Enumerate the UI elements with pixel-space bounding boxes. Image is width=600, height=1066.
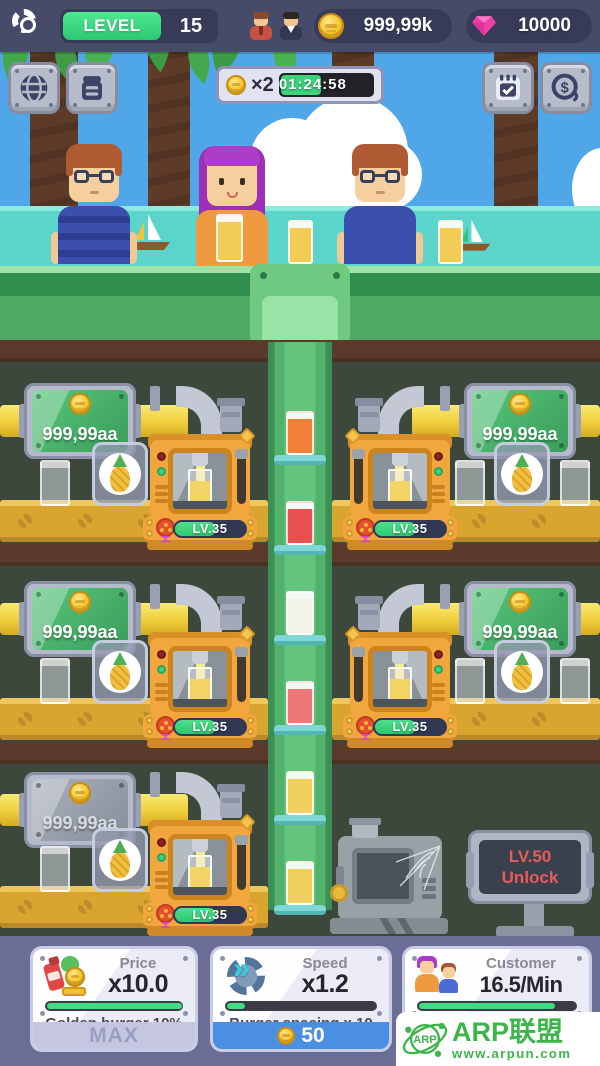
elevator-juice-glass	[286, 681, 314, 725]
gem-icon	[471, 15, 497, 37]
elevator-shelf	[274, 905, 326, 915]
timer-text: 01:24:58	[279, 76, 347, 93]
speed-icon: »	[223, 954, 271, 998]
juice-glass	[288, 220, 313, 264]
arp-logo-icon: ARP	[400, 1014, 450, 1064]
empty-glass	[40, 460, 70, 506]
valve-icon	[220, 788, 242, 818]
level-badge[interactable]: LEVEL 15	[60, 9, 218, 43]
pineapple-icon	[110, 664, 130, 690]
empty-glass	[40, 846, 70, 892]
level-label: LEVEL	[63, 12, 161, 40]
pineapple-container	[92, 828, 148, 892]
elevator-juice-glass	[286, 591, 314, 635]
green-light-icon	[434, 467, 443, 476]
machine-screen	[368, 646, 432, 712]
glasses-icon	[74, 170, 114, 184]
price-upgrade-button[interactable]: MAX	[33, 1022, 195, 1049]
coin-icon	[226, 75, 246, 95]
supply-crate-icon	[77, 73, 107, 103]
valve-icon	[352, 822, 378, 838]
watermark-title: ARP联盟	[452, 1018, 571, 1046]
speed-upgrade-card: » Speed x1.2 Burger spacing x 10 50	[210, 946, 392, 1052]
juice-machine[interactable]: LV.35	[150, 626, 250, 748]
watermark-url: www.arpun.com	[452, 1046, 571, 1061]
customer-icon	[415, 954, 463, 998]
machine-level-band: LV.35	[343, 516, 457, 544]
speed-upgrade-button[interactable]: 50	[213, 1022, 389, 1049]
customer-character	[58, 148, 130, 264]
juice-machine[interactable]: LV.35	[350, 626, 450, 748]
game-screen: 999,99aa LV.35 999,99aa	[0, 0, 600, 1066]
coin-icon	[318, 13, 344, 39]
green-light-icon	[434, 665, 443, 674]
pineapple-icon	[512, 664, 532, 690]
elevator-shelf	[274, 725, 326, 735]
empty-glass	[560, 460, 590, 506]
pineapple-icon	[110, 466, 130, 492]
juice-machine[interactable]: LV.35	[150, 428, 250, 550]
earnings-button[interactable]: $	[540, 62, 592, 114]
coin-icon	[509, 393, 531, 415]
lever-icon	[354, 650, 363, 702]
character-head	[355, 148, 405, 202]
coin-icon	[509, 591, 531, 613]
customer-character	[344, 148, 416, 264]
valve-icon	[358, 600, 380, 630]
gem-counter: 10000	[466, 9, 592, 43]
settings-gear-icon[interactable]	[12, 9, 36, 33]
green-light-icon	[157, 467, 166, 476]
juice-machine[interactable]: LV.35	[150, 814, 250, 936]
coin-counter: 999,99k	[314, 9, 452, 43]
elevator-juice-glass	[286, 411, 314, 455]
valve-icon	[220, 402, 242, 432]
card-value: x1.2	[271, 972, 379, 997]
watermark: ARP ARP联盟 www.arpun.com	[396, 1012, 600, 1066]
svg-text:ARP: ARP	[413, 1034, 437, 1046]
valve-icon	[220, 600, 242, 630]
hair-icon	[66, 144, 122, 168]
juice-machine[interactable]: LV.35	[350, 428, 450, 550]
empty-glass	[455, 460, 485, 506]
elevator-juice-glass	[286, 861, 314, 905]
elevator-juice-glass	[286, 501, 314, 545]
machine-level-badge: LV.35	[173, 718, 247, 736]
machine-level-badge: LV.35	[173, 906, 247, 924]
empty-glass	[40, 658, 70, 704]
lever-icon	[237, 452, 246, 504]
progress-bar	[225, 1001, 377, 1011]
calendar-check-icon	[492, 72, 524, 104]
boost-timer: 01:24:58	[279, 73, 374, 97]
card-value: x10.0	[91, 972, 185, 997]
coin-icon	[69, 591, 91, 613]
red-light-icon	[434, 452, 443, 461]
machine-level-badge: LV.35	[373, 520, 447, 538]
pineapple-icon	[512, 466, 532, 492]
level-value: 15	[164, 9, 218, 43]
lever-icon	[237, 838, 246, 890]
empty-glass	[560, 658, 590, 704]
pineapple-container	[494, 640, 550, 704]
machine-screen	[368, 448, 432, 514]
elevator-shelf	[274, 455, 326, 465]
progress-bar	[45, 1001, 183, 1011]
staff-avatars-icon[interactable]	[248, 10, 306, 42]
machine-level-badge: LV.35	[173, 520, 247, 538]
character-shirt	[58, 206, 130, 264]
coin-icon	[69, 393, 91, 415]
juice-glass	[438, 220, 463, 264]
elevator-shelf	[274, 635, 326, 645]
character-head	[207, 152, 257, 206]
machine-screen	[168, 646, 232, 712]
character-shirt	[344, 206, 416, 264]
boost-timer-panel[interactable]: ×2 01:24:58	[216, 66, 384, 104]
elevator-head-inner	[262, 296, 338, 346]
svg-text:$: $	[561, 80, 569, 96]
speed-upgrade-cost: 50	[301, 1024, 324, 1048]
machine-level-band: LV.35	[343, 714, 457, 742]
lever-icon	[354, 452, 363, 504]
juice-glass	[216, 214, 243, 262]
machine-level-band: LV.35	[143, 902, 257, 930]
lever-icon	[237, 650, 246, 702]
progress-bar	[417, 1001, 577, 1011]
glasses-icon	[360, 170, 400, 184]
price-upgrade-card: Price x10.0 Golden burger 10% MAX	[30, 946, 198, 1052]
coin-icon	[277, 1027, 295, 1045]
elevator-shelf	[274, 545, 326, 555]
pineapple-container	[494, 442, 550, 506]
machine-screen	[168, 834, 232, 900]
machine-screen	[168, 448, 232, 514]
sign-pole	[524, 904, 544, 928]
lamp-icon	[330, 884, 348, 902]
card-value: 16.5/Min	[463, 972, 579, 997]
green-light-icon	[157, 853, 166, 862]
globe-icon	[18, 72, 50, 104]
elevator-shelf	[274, 815, 326, 825]
unlock-label: Unlock	[502, 867, 559, 888]
hair-icon	[352, 144, 408, 168]
red-light-icon	[157, 650, 166, 659]
boost-multiplier: ×2	[251, 74, 274, 97]
machine-level-badge: LV.35	[373, 718, 447, 736]
cobweb-icon	[394, 844, 442, 892]
machine-level-band: LV.35	[143, 516, 257, 544]
coin-icon	[69, 782, 91, 804]
pineapple-container	[92, 640, 148, 704]
daily-tasks-button[interactable]	[482, 62, 534, 114]
unlock-sign: LV.50 Unlock	[468, 830, 592, 904]
pineapple-container	[92, 442, 148, 506]
red-light-icon	[157, 452, 166, 461]
card-title: Customer	[463, 955, 579, 972]
machine-level-band: LV.35	[143, 714, 257, 742]
unlock-level: LV.50	[509, 846, 552, 867]
red-light-icon	[434, 650, 443, 659]
empty-glass	[455, 658, 485, 704]
gem-amount: 10000	[497, 15, 592, 37]
elevator-juice-glass	[286, 771, 314, 815]
coin-amount: 999,99k	[344, 15, 452, 37]
dollar-coin-icon: $	[550, 72, 582, 104]
character-head	[69, 148, 119, 202]
red-light-icon	[157, 838, 166, 847]
pineapple-icon	[110, 852, 130, 878]
menu-button[interactable]	[66, 62, 118, 114]
world-button[interactable]	[8, 62, 60, 114]
price-icon	[43, 954, 91, 998]
green-light-icon	[157, 665, 166, 674]
valve-icon	[358, 402, 380, 432]
